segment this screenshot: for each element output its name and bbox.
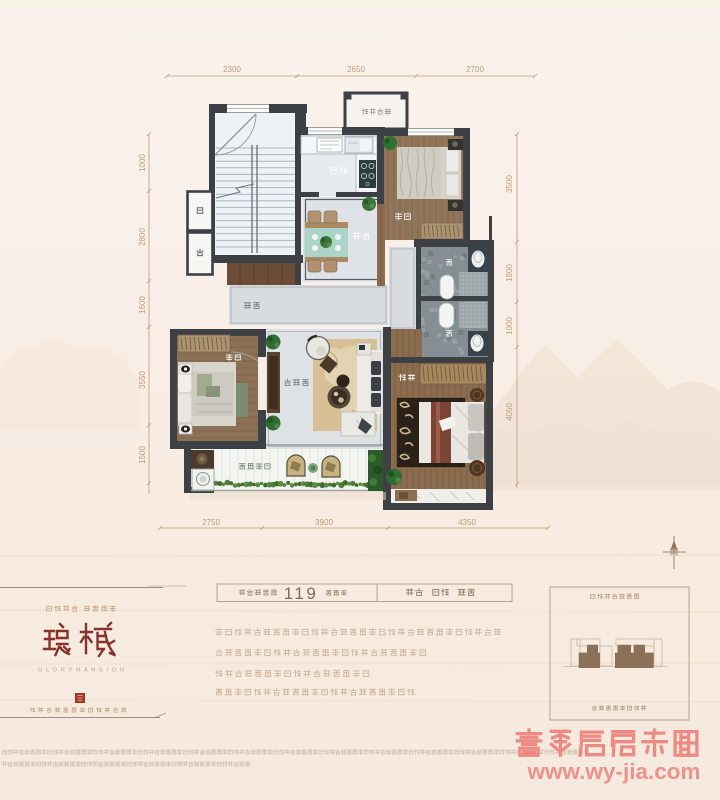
svg-text:3900: 3900 — [315, 518, 333, 527]
svg-text:4050: 4050 — [505, 403, 514, 421]
svg-text:1800: 1800 — [505, 264, 514, 282]
svg-text:2650: 2650 — [347, 65, 365, 74]
svg-text:www.wy-jia.com: www.wy-jia.com — [527, 759, 701, 784]
svg-text:3500: 3500 — [505, 175, 514, 193]
svg-text:1000: 1000 — [505, 317, 514, 335]
svg-text:2300: 2300 — [223, 65, 241, 74]
svg-text:3550: 3550 — [138, 371, 147, 389]
svg-text:4350: 4350 — [458, 518, 476, 527]
svg-text:2700: 2700 — [466, 65, 484, 74]
svg-text:1600: 1600 — [138, 296, 147, 314]
svg-text:1500: 1500 — [138, 446, 147, 464]
svg-text:2750: 2750 — [202, 518, 220, 527]
svg-text:1000: 1000 — [138, 154, 147, 172]
svg-text:G L O R Y M A N S I O N: G L O R Y M A N S I O N — [38, 668, 125, 674]
svg-text:2800: 2800 — [138, 228, 147, 246]
svg-text:119: 119 — [284, 584, 319, 603]
